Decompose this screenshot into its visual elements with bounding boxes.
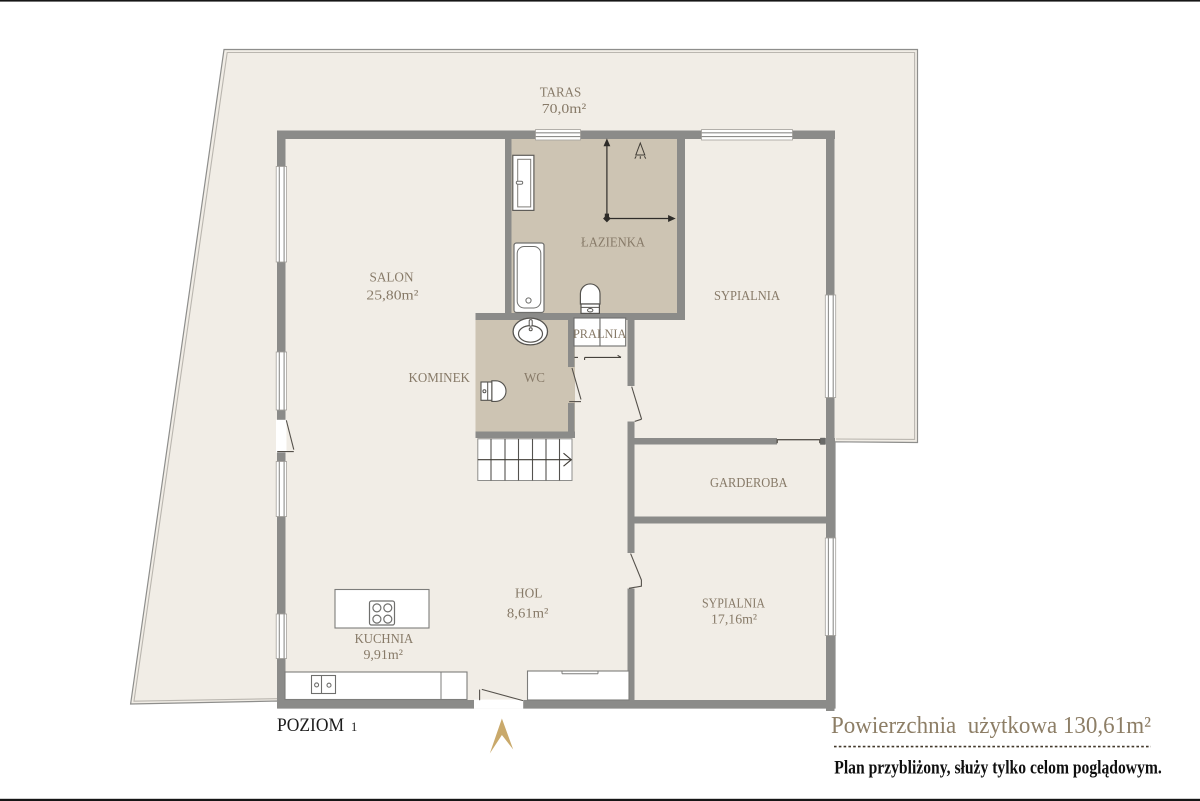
svg-text:Plan przybliżony, służy tylko: Plan przybliżony, służy tylko celom pogl…	[834, 757, 1162, 778]
svg-text:ŁAZIENKA: ŁAZIENKA	[581, 235, 646, 250]
svg-text:SYPIALNIA: SYPIALNIA	[714, 289, 781, 304]
svg-text:9,91m²: 9,91m²	[363, 648, 403, 663]
svg-text:KUCHNIA: KUCHNIA	[355, 632, 414, 647]
svg-text:KOMINEK: KOMINEK	[408, 371, 470, 386]
svg-text:PRALNIA: PRALNIA	[573, 327, 627, 341]
svg-text:GARDEROBA: GARDEROBA	[710, 476, 788, 491]
svg-text:SALON: SALON	[370, 270, 414, 285]
svg-text:WC: WC	[524, 371, 545, 386]
svg-text:70,0m²: 70,0m²	[542, 102, 587, 117]
svg-text:8,61m²: 8,61m²	[507, 607, 549, 622]
svg-text:1: 1	[351, 720, 357, 734]
svg-text:Powierzchnia użytkowa 130,61m: Powierzchnia użytkowa 130,61m²	[831, 712, 1151, 739]
svg-text:TARAS: TARAS	[540, 86, 582, 101]
svg-text:HOL: HOL	[515, 586, 543, 601]
svg-text:POZIOM: POZIOM	[277, 715, 344, 736]
svg-text:17,16m²: 17,16m²	[711, 613, 757, 628]
svg-text:25,80m²: 25,80m²	[366, 288, 418, 303]
svg-text:SYPIALNIA: SYPIALNIA	[702, 597, 766, 612]
